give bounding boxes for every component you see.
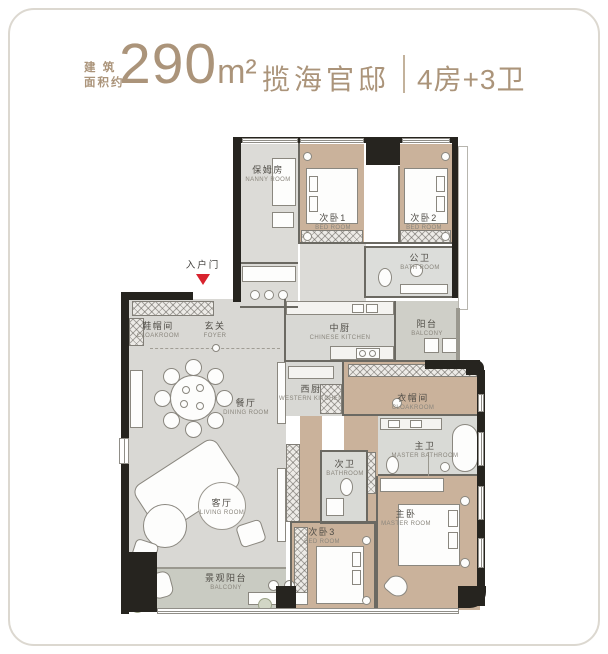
dining-chair <box>207 412 224 429</box>
dining-chair <box>163 412 180 429</box>
window <box>402 138 450 143</box>
pillow <box>436 176 445 192</box>
wall <box>344 414 480 416</box>
room-label-master-bath: 主卫MASTER BATHROOM <box>392 439 459 459</box>
room-label-living: 客厅LIVING ROOM <box>200 496 244 516</box>
room-label-western-kitchen: 西厨WESTERN KITCHEN <box>279 382 343 402</box>
wall-shaft <box>366 139 400 165</box>
project-name: 揽海官邸 <box>262 58 390 98</box>
room-label-nanny: 保姆房NANNY ROOM <box>245 163 290 183</box>
window <box>478 486 484 520</box>
pillow <box>309 176 318 192</box>
nightstand <box>460 558 470 568</box>
bath-counter <box>400 284 448 294</box>
room-label-bedroom1: 次卧1BED ROOM <box>315 211 351 231</box>
nanny-table <box>272 212 294 228</box>
plate <box>180 400 188 408</box>
nightstand <box>441 152 450 161</box>
wall-right-bath <box>452 250 458 298</box>
dining-chair <box>185 421 202 438</box>
washer-icon <box>278 290 288 300</box>
floor-hall-top <box>300 244 366 302</box>
layout-info: 4房+3卫 <box>417 58 526 98</box>
wall <box>364 296 452 298</box>
room-label-bedroom2: 次卧2BED ROOM <box>406 211 442 231</box>
room-label-cloakroom: 衣帽间CLOAKROOM <box>392 391 435 411</box>
wall <box>240 262 298 264</box>
plate <box>182 386 190 394</box>
area-unit: m² <box>217 53 257 91</box>
wall <box>300 242 452 244</box>
wall-right-upper <box>452 137 458 250</box>
entrance-label: 入户门 <box>186 257 221 271</box>
western-kitchen-counter <box>288 366 334 379</box>
sink-icon <box>410 420 422 428</box>
nightstand <box>362 536 371 545</box>
burner-icon <box>369 350 376 357</box>
wall <box>298 140 300 244</box>
room-label-master: 主卧MASTER ROOM <box>381 507 431 527</box>
balcony-side-wall <box>456 308 460 362</box>
entrance-marker-icon <box>196 274 210 285</box>
toilet-icon <box>340 478 353 496</box>
tv-cabinet <box>277 468 286 542</box>
wall-bottom-left <box>121 552 157 612</box>
pillow <box>352 570 361 585</box>
kitchen-sink <box>352 304 364 313</box>
kitchen-sink <box>366 304 378 313</box>
floor-hall-bedrooms <box>300 416 322 523</box>
window <box>478 394 484 412</box>
nightstand <box>303 232 312 241</box>
wall <box>364 246 366 298</box>
window <box>478 432 484 466</box>
floorplan-page: 建 筑 面积约 290m² 揽海官邸 4房+3卫 <box>0 0 608 654</box>
ac-ledge <box>458 146 468 310</box>
wall <box>290 521 376 523</box>
toilet-icon <box>378 268 392 287</box>
sink-icon <box>388 420 400 428</box>
room-label-balcony-upper: 阳台BALCONY <box>411 317 442 337</box>
wall-left-upper <box>233 137 241 302</box>
hall-wardrobe <box>286 444 300 522</box>
wall-bedroom3-corner <box>276 586 296 609</box>
pillow <box>436 196 445 212</box>
nightstand <box>441 232 450 241</box>
pillow <box>448 532 458 549</box>
downlight-icon <box>212 344 220 352</box>
wall <box>320 450 322 524</box>
tall-cabinet <box>130 370 143 428</box>
dining-chair <box>207 368 224 385</box>
room-label-public-bath: 公卫BATH ROOM <box>400 251 440 271</box>
shower-drain-icon <box>440 462 450 472</box>
room-label-shoe-cloakroom: 鞋帽间CLOAKROOM <box>137 319 180 339</box>
room-label-chinese-kitchen: 中厨CHINESE KITCHEN <box>310 321 371 341</box>
wall <box>394 301 396 360</box>
wall <box>284 299 286 362</box>
wall <box>320 450 368 452</box>
pillow <box>309 196 318 212</box>
room-label-bath2: 次卫BATHROOM <box>326 457 363 477</box>
wall <box>378 474 480 476</box>
header-divider <box>403 55 405 93</box>
pillow <box>352 552 361 567</box>
wall <box>364 246 452 248</box>
window <box>119 438 129 464</box>
area-value: 290m² <box>119 36 257 93</box>
room-label-bedroom3: 次卧3BED ROOM <box>304 525 340 545</box>
pillow <box>448 510 458 527</box>
wall <box>240 306 298 308</box>
master-wardrobe <box>380 478 444 492</box>
washer-icon <box>442 338 457 353</box>
plate <box>196 384 204 392</box>
window <box>242 138 298 143</box>
dining-chair <box>154 390 171 407</box>
room-label-view-balcony: 景观阳台BALCONY <box>205 571 247 591</box>
window <box>300 138 364 143</box>
foyer-cabinet <box>132 301 214 316</box>
window-balcony <box>157 608 459 614</box>
wall <box>398 166 400 244</box>
wall-entry <box>121 292 193 300</box>
dining-chair <box>185 359 202 376</box>
room-label-foyer: 玄关FOYER <box>204 319 227 339</box>
laundry-sink <box>250 290 260 300</box>
washer-icon <box>424 338 439 353</box>
shower-tray <box>326 498 344 516</box>
nightstand <box>303 152 312 161</box>
plate <box>196 402 204 410</box>
washer-icon <box>264 290 274 300</box>
nightstand <box>362 596 371 605</box>
nightstand <box>460 496 470 506</box>
burner-icon <box>359 350 366 357</box>
wall <box>376 476 378 610</box>
wall <box>366 450 368 524</box>
window <box>478 538 484 568</box>
laundry-counter <box>242 266 296 282</box>
room-label-dining: 餐厅DINING ROOM <box>223 396 269 416</box>
dining-chair <box>163 368 180 385</box>
